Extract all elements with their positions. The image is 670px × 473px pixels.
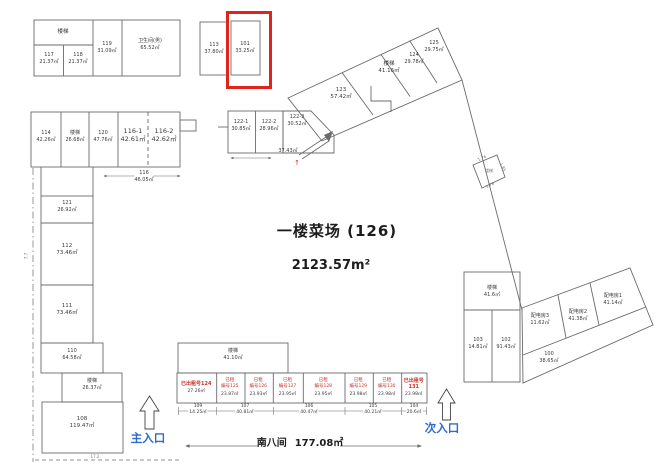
stall-125: 已租编号12523.87㎡ [216, 373, 245, 403]
unit-label-117: 11721.37㎡ [39, 52, 58, 65]
secondary-entrance-arrow-icon [438, 389, 455, 420]
unit-label-power-room-1: 配电房141.14㎡ [603, 293, 622, 306]
unit-label-121: 12126.92㎡ [57, 200, 76, 213]
unit-label-stairs-right: 楼梯41.6㎡ [484, 285, 500, 298]
unit-label-stairs-band: 楼梯41.16㎡ [378, 61, 399, 75]
unit-label-116-1: 116-142.61㎡ [120, 127, 145, 144]
dim-label-116: 11646.05㎡ [134, 170, 153, 183]
unit-label-stairs-leftcol: 楼梯26.37㎡ [82, 378, 101, 391]
page-title: 一楼菜场 (126) [277, 222, 397, 242]
unit-label-122-2: 122-228.96㎡ [259, 119, 278, 132]
dim-label-left-boundary: 7.7 [23, 253, 28, 259]
floor-plan: 楼梯 11721.37㎡ 11821.37㎡ 11931.09㎡ 卫生间(男)6… [0, 0, 670, 473]
unit-label-120: 12047.76㎡ [93, 130, 112, 143]
stall-127: 已租编号12723.95㎡ [273, 373, 303, 403]
dim-label-109: 10914.25㎡ [188, 404, 207, 416]
dim-label-105: 10540.21㎡ [363, 404, 382, 416]
unit-label-112: 11273.46㎡ [56, 243, 77, 257]
stall-130: 已租编号13023.98㎡ [373, 373, 402, 403]
unit-label-110: 11064.58㎡ [62, 348, 81, 361]
dim-label-106: 10640.47㎡ [299, 404, 318, 416]
stall-124: 已出租号12427.26㎡ [177, 373, 216, 403]
unit-label-108: 108119.47㎡ [70, 416, 95, 430]
unit-label-119: 11931.09㎡ [97, 41, 116, 54]
main-entrance-arrow-icon [140, 396, 159, 429]
dim-label-ramp-area: 37.43㎡ [278, 148, 297, 155]
stall-131: 已出租号13123.98㎡ [401, 373, 427, 403]
unit-label-102: 10291.43㎡ [496, 337, 515, 350]
unit-label-103: 10314.81㎡ [468, 337, 487, 350]
unit-label-111: 11173.46㎡ [56, 303, 77, 317]
dim-label-bottom-boundary: 17.2 [91, 454, 100, 459]
unit-label-101-highlighted: 10133.25㎡ [235, 41, 254, 54]
unit-label-power-room-3: 配电房311.62㎡ [530, 313, 549, 326]
unit-label-125: 12529.75㎡ [424, 40, 443, 53]
stall-126: 已租编号12623.93㎡ [244, 373, 273, 403]
unit-label-114: 11442.26㎡ [36, 130, 55, 143]
unit-label-123: 12357.42㎡ [330, 87, 351, 101]
unit-label-122-1: 122-130.85㎡ [231, 119, 250, 132]
unit-label-122-3: 122-330.52㎡ [287, 114, 306, 127]
unit-label-stairs-topleft: 楼梯 [57, 29, 68, 36]
unit-label-116-2: 116-242.62㎡ [151, 127, 176, 144]
stall-row: 已出租号12427.26㎡ 已租编号12523.87㎡ 已租编号12623.93… [177, 373, 427, 403]
south-row-label: 南八间177.08㎡ [253, 437, 348, 450]
secondary-entrance-label: 次入口 [425, 421, 460, 436]
total-area-label: 2123.57m² [292, 258, 370, 275]
ramp-up-arrow-icon: ↑ [294, 159, 300, 168]
unit-label-stairs-south: 楼梯41.10㎡ [223, 348, 242, 361]
unit-label-113: 11337.80㎡ [204, 42, 223, 55]
stall-128: 已租编号12823.95㎡ [303, 373, 345, 403]
main-entrance-label: 主入口 [131, 431, 166, 446]
stall-129: 已租编号12923.98㎡ [344, 373, 373, 403]
dim-label-104: 10420.6㎡ [406, 404, 423, 416]
unit-label-100: 10038.65㎡ [539, 351, 558, 364]
unit-label-stairs-midleft: 楼梯26.68㎡ [65, 130, 84, 143]
unit-label-118: 11821.37㎡ [68, 52, 87, 65]
unit-label-restroom: 卫生间(男)65.52㎡ [138, 38, 162, 51]
unit-label-power-room-2: 配电房241.38㎡ [568, 309, 587, 322]
stair-shaft-label: 楼梯 [485, 168, 493, 173]
unit-label-124: 12429.78㎡ [404, 52, 423, 65]
dim-label-107: 10740.81㎡ [235, 404, 254, 416]
